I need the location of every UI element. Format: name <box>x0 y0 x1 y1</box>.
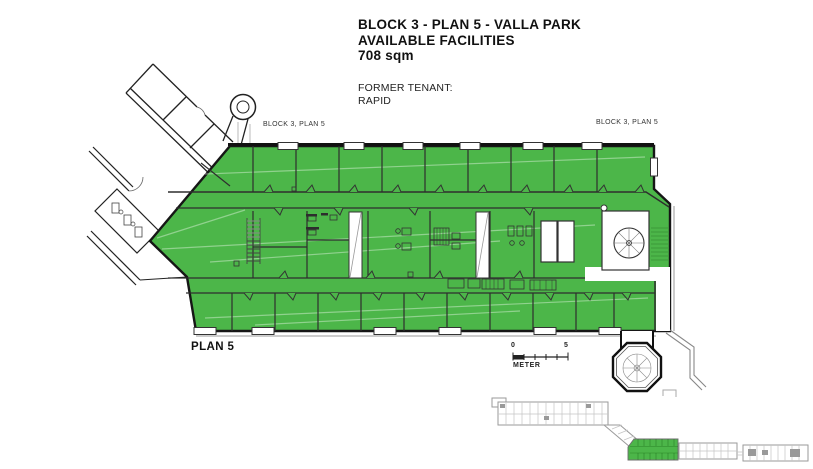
round-stair-tower-icon <box>223 95 256 147</box>
available-area-highlight <box>150 145 674 337</box>
wing-label-left: BLOCK 3, PLAN 5 <box>263 121 325 128</box>
spiral-stair-icon-octagon <box>623 354 651 382</box>
former-tenant-name: RAPID <box>358 95 391 107</box>
former-tenant-label: FORMER TENANT: <box>358 82 453 94</box>
scale-unit-label: METER <box>513 362 541 369</box>
plan-name-label: PLAN 5 <box>191 341 234 353</box>
scale-min-label: 0 <box>511 342 515 349</box>
staircase-icon <box>247 218 260 264</box>
scale-bar-graphic <box>513 353 568 361</box>
external-walkway <box>666 330 706 390</box>
overview-minimap <box>492 390 808 461</box>
floor-plan-drawing <box>0 0 813 469</box>
elevator-icons <box>541 221 574 262</box>
spiral-stair-icon <box>614 228 644 258</box>
octagon-tower <box>613 331 661 391</box>
scale-max-label: 5 <box>564 342 568 349</box>
minimap-walkway-end <box>663 390 676 397</box>
page-title-line1: BLOCK 3 - PLAN 5 - VALLA PARK <box>358 17 581 32</box>
wing-label-right: BLOCK 3, PLAN 5 <box>596 119 658 126</box>
floor-plan-page: BLOCK 3 - PLAN 5 - VALLA PARK AVAILABLE … <box>0 0 813 469</box>
minimap-current-plan-highlight <box>628 439 678 460</box>
page-title-area: 708 sqm <box>358 48 414 63</box>
page-title-line2: AVAILABLE FACILITIES <box>358 33 515 48</box>
